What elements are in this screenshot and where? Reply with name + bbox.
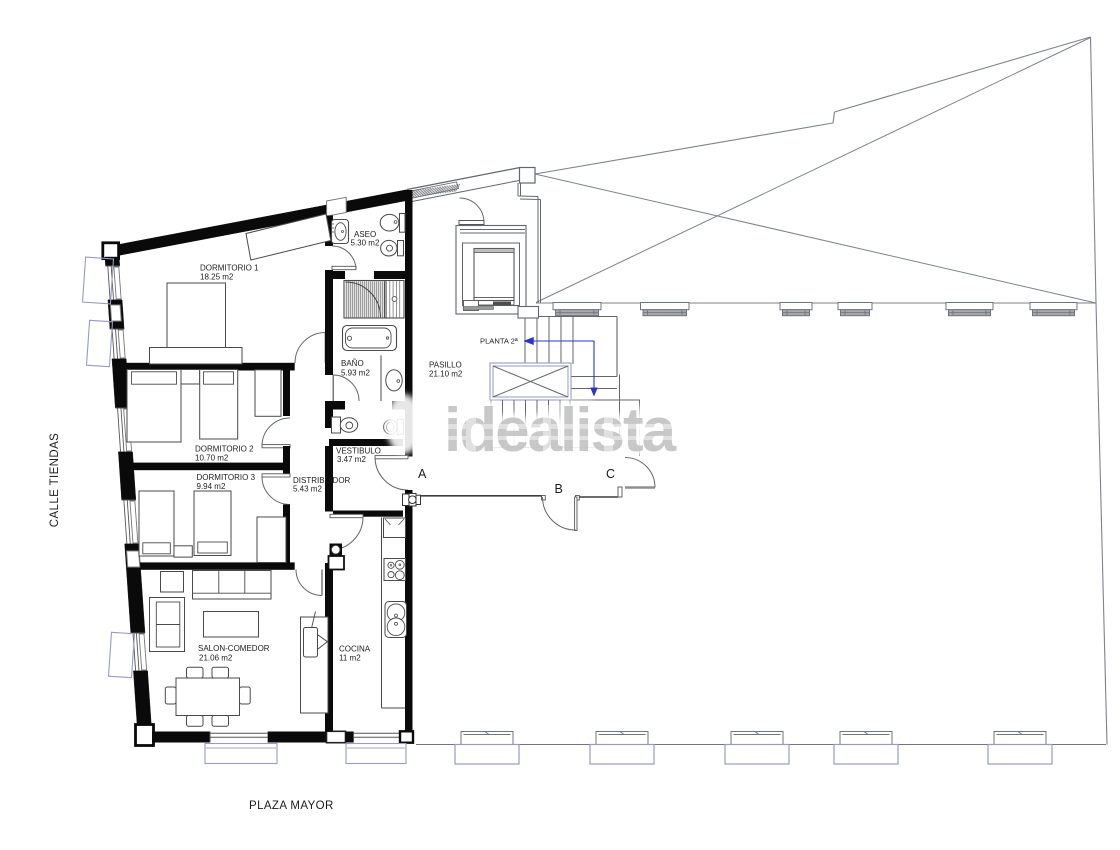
svg-text:DORMITORIO 2: DORMITORIO 2 xyxy=(195,445,254,454)
svg-text:10.70 m2: 10.70 m2 xyxy=(195,454,229,463)
svg-text:5.43 m2: 5.43 m2 xyxy=(293,485,322,494)
svg-text:21.10 m2: 21.10 m2 xyxy=(429,370,463,379)
svg-text:21.06 m2: 21.06 m2 xyxy=(199,654,233,663)
svg-text:C: C xyxy=(606,467,615,481)
svg-text:COCINA: COCINA xyxy=(339,645,371,654)
svg-text:18.25 m2: 18.25 m2 xyxy=(200,273,234,282)
svg-text:11 m2: 11 m2 xyxy=(339,654,361,663)
svg-text:9.94 m2: 9.94 m2 xyxy=(197,482,226,491)
svg-text:B: B xyxy=(555,482,563,496)
svg-text:SALON-COMEDOR: SALON-COMEDOR xyxy=(198,644,270,653)
svg-text:PASILLO: PASILLO xyxy=(429,361,462,370)
svg-text:3.47 m2: 3.47 m2 xyxy=(337,455,366,464)
svg-text:DORMITORIO 3: DORMITORIO 3 xyxy=(197,473,256,482)
svg-text:BAÑO: BAÑO xyxy=(341,359,364,368)
svg-text:5.30 m2: 5.30 m2 xyxy=(351,239,380,248)
svg-text:PLAZA MAYOR: PLAZA MAYOR xyxy=(249,800,334,812)
svg-text:PLANTA 2ª: PLANTA 2ª xyxy=(480,337,518,346)
svg-text:DORMITORIO 1: DORMITORIO 1 xyxy=(200,264,259,273)
svg-text:CALLE TIENDAS: CALLE TIENDAS xyxy=(49,433,61,527)
svg-text:A: A xyxy=(418,467,427,481)
svg-text:5.93 m2: 5.93 m2 xyxy=(341,369,370,378)
svg-text:idealista: idealista xyxy=(444,396,677,465)
